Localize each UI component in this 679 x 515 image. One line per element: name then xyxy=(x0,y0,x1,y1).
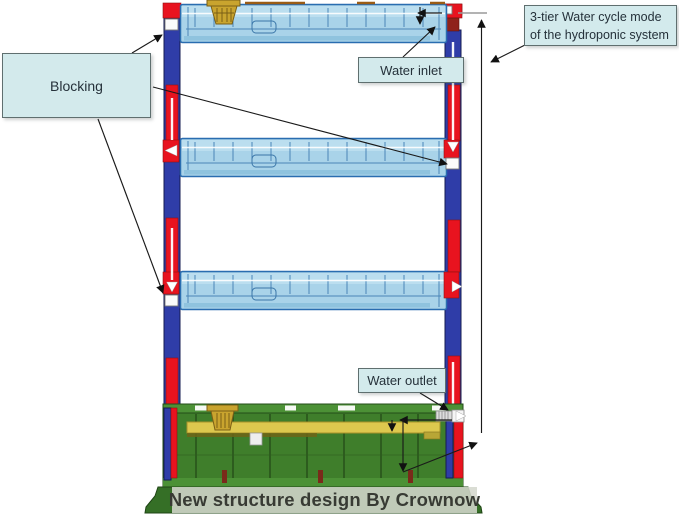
blocking-plug-top-left xyxy=(165,19,178,30)
hydroponic-diagram: Blocking Water inlet 3-tier Water cycle … xyxy=(0,0,679,515)
water-inlet-callout: Water inlet xyxy=(358,57,464,83)
flow-arrows-white xyxy=(165,42,462,408)
water-outlet-label: Water outlet xyxy=(367,373,437,388)
tier-3-tray xyxy=(181,272,447,310)
mode-note-line2: of the hydroponic system xyxy=(530,26,672,44)
mode-note: 3-tier Water cycle mode of the hydroponi… xyxy=(524,5,677,46)
water-inlet-label: Water inlet xyxy=(380,63,442,78)
water-tank xyxy=(163,404,463,487)
tier-2-tray xyxy=(181,139,447,177)
blocking-leader-1 xyxy=(132,35,162,53)
tank-white-fitting xyxy=(250,433,262,445)
blocking-leader-3 xyxy=(98,119,163,293)
credit-banner-text: New structure design By Crownow xyxy=(169,489,481,511)
blocking-plug-tier3-left xyxy=(165,295,178,306)
water-outlet-callout: Water outlet xyxy=(358,368,446,393)
blocking-label: Blocking xyxy=(50,78,103,94)
mode-note-leader xyxy=(491,44,527,62)
mode-note-line1: 3-tier Water cycle mode xyxy=(530,8,672,26)
credit-banner: New structure design By Crownow xyxy=(172,487,477,513)
blocking-callout: Blocking xyxy=(2,53,151,118)
blocking-plug-tier2-right xyxy=(446,158,459,169)
